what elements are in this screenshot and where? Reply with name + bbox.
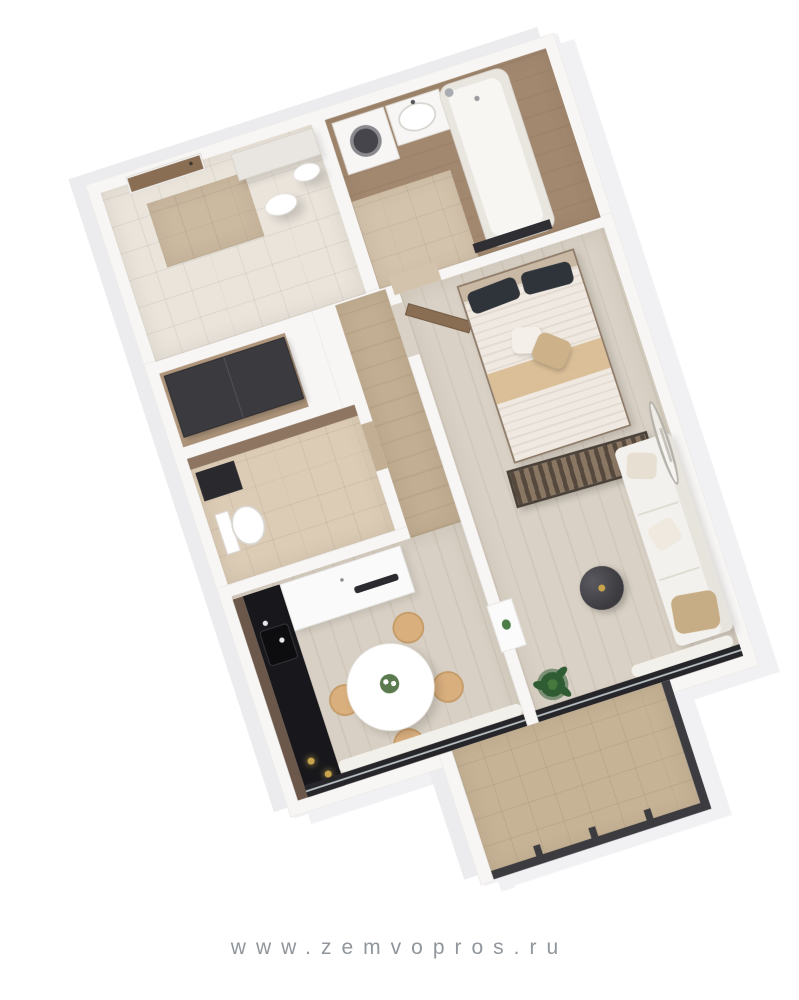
floorplan	[85, 33, 798, 939]
kitchen-sink	[259, 623, 299, 667]
washer-door	[346, 121, 386, 161]
sofa-pillow	[626, 452, 657, 479]
site-watermark: www.zemvopros.ru	[0, 936, 799, 960]
table-flowers	[377, 672, 401, 696]
kitchen-faucet	[262, 620, 269, 627]
cabinet-knob	[340, 578, 344, 582]
counter-lamp	[307, 757, 316, 766]
coffee-table-gold-detail	[597, 584, 606, 593]
sofa-cushion-line	[638, 501, 679, 516]
console-green-bottle	[501, 618, 513, 631]
sink-basin	[394, 97, 440, 136]
sofa-cushion-line	[659, 566, 700, 581]
cabinet-vent-slot	[354, 573, 400, 594]
sofa-pillow	[646, 516, 684, 553]
sofa-blanket	[670, 589, 722, 635]
wardrobe-panel-line	[223, 357, 243, 418]
